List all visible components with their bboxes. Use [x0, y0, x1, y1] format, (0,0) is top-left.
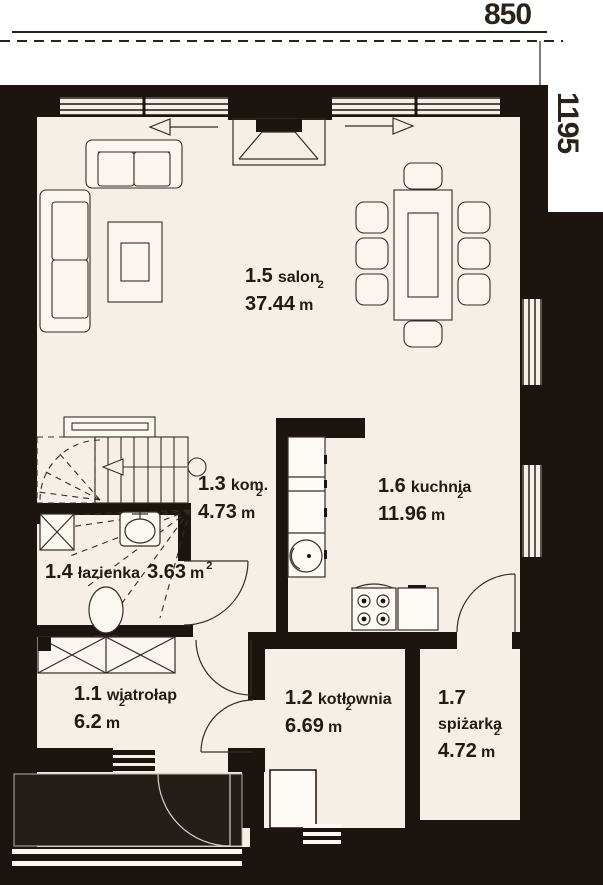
room-area-unit: m [481, 744, 495, 761]
window-top-right [332, 97, 500, 115]
stair-landing-rail [64, 417, 155, 437]
room-number: 1.7 [438, 687, 466, 709]
room-area-unit: m [241, 505, 255, 522]
wall-bottom-right [405, 820, 603, 847]
chair [458, 238, 490, 269]
frame-left [0, 85, 12, 885]
chair [404, 321, 442, 347]
room-label-wiatrolap: 1.1wiatrołap2 6.2m [74, 682, 125, 736]
washbasin [120, 512, 160, 546]
chair [356, 238, 388, 269]
area-superscript: 2 [256, 481, 262, 506]
boiler [270, 770, 316, 828]
chair [458, 274, 490, 305]
chair [404, 163, 442, 189]
room-number: 1.3 [198, 473, 226, 495]
sofa-two-seat [86, 140, 182, 188]
chair [356, 274, 388, 305]
wall-kotlownia-left-lower [248, 752, 265, 772]
kitchen-sink [290, 540, 322, 572]
porch [12, 774, 242, 866]
floor-plan-page: 850 1195 1.5salon2 37.44m 1.3kom.2 4.73m… [0, 0, 603, 885]
room-area: 11.96 [378, 503, 427, 525]
sofa-left [40, 190, 90, 332]
room-area: 3.63 [147, 561, 186, 583]
exterior-step [12, 861, 242, 866]
room-area: 37.44 [245, 293, 295, 315]
room-number: 1.1 [74, 683, 102, 705]
room-name: salon [278, 269, 320, 286]
kitchen-counter-bottom [398, 585, 438, 630]
room-label-kuchnia: 1.6kuchnia2 11.96m [378, 474, 463, 528]
room-label-salon: 1.5salon2 37.44m [245, 264, 324, 318]
room-number: 1.2 [285, 687, 313, 709]
kotlownia-exterior-steps [303, 824, 341, 844]
wall-kitchen-left [276, 418, 288, 632]
wall-kotlownia-top [248, 632, 457, 649]
window-top-left [60, 97, 228, 115]
dimension-lines [0, 32, 563, 85]
room-area-unit: m [328, 719, 342, 736]
wall-below-entrance [242, 772, 264, 828]
area-superscript: 2 [318, 273, 324, 298]
room-name: łazienka [78, 565, 140, 582]
room-area: 6.69 [285, 715, 324, 737]
dining-table [394, 190, 452, 320]
room-area-unit: m [299, 297, 313, 314]
room-name: spiżarka [438, 716, 502, 733]
room-label-kom: 1.3kom.2 4.73m [198, 472, 262, 526]
room-area: 4.73 [198, 501, 237, 523]
area-superscript: 2 [346, 695, 352, 720]
entrance-steps [113, 750, 155, 771]
exterior-step [12, 849, 242, 854]
room-label-kotlownia: 1.2kotłownia2 6.69m [285, 686, 352, 740]
wardrobe [38, 637, 175, 673]
cooktop-stove [352, 584, 396, 630]
fireplace-wall-block [228, 85, 332, 120]
area-superscript: 2 [494, 720, 500, 745]
window-right-kitchen [522, 465, 542, 557]
dimension-height-label: 1195 [550, 92, 584, 202]
stair-treads [95, 437, 188, 503]
room-label-spizarka: 1.7 spiżarka2 4.72m [438, 686, 500, 765]
coffee-table [108, 222, 162, 302]
room-area-unit: m [190, 565, 204, 582]
room-number: 1.6 [378, 475, 406, 497]
wall-wiatrolap-bottom [12, 748, 113, 772]
room-area-unit: m [106, 715, 120, 732]
wall-kotlownia-spizarka [405, 649, 420, 820]
wall-spizarka-door-stub [512, 632, 520, 649]
floor-plan-drawing [0, 0, 603, 885]
room-area: 6.2 [74, 711, 102, 733]
frame-right [548, 212, 603, 885]
room-area: 4.72 [438, 740, 477, 762]
chair [458, 202, 490, 233]
area-superscript: 2 [119, 691, 125, 716]
room-name: wiatrołap [107, 687, 177, 704]
room-label-lazienka: 1.4łazienka3.63m2 [45, 560, 212, 588]
area-superscript: 2 [457, 483, 463, 508]
room-area-unit: m [431, 507, 445, 524]
area-superscript: 2 [206, 554, 212, 579]
wall-left [12, 85, 37, 847]
dimension-width-label: 850 [470, 0, 545, 32]
chair [356, 202, 388, 233]
room-name: kotłownia [318, 691, 392, 708]
room-number: 1.5 [245, 265, 273, 287]
room-name: kom. [231, 477, 268, 494]
room-number: 1.4 [45, 561, 73, 583]
wall-kitchen-top [276, 418, 365, 438]
window-right-salon [522, 299, 542, 385]
